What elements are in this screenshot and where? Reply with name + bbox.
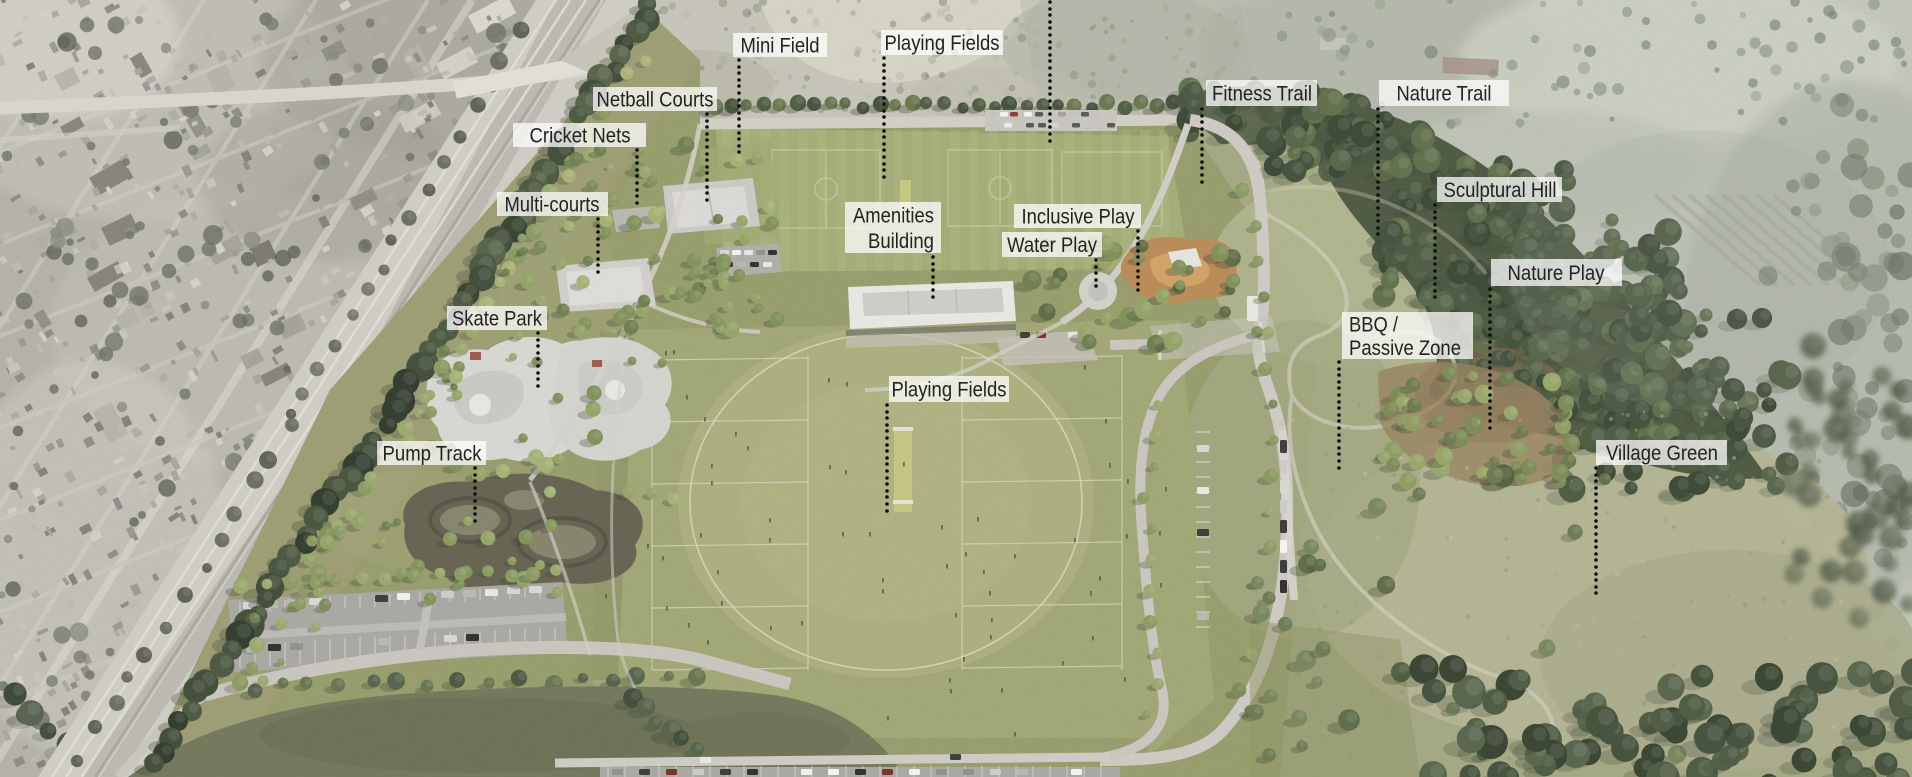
svg-text:BBQ /: BBQ / xyxy=(1349,313,1398,336)
svg-text:Amenities: Amenities xyxy=(853,204,934,227)
svg-text:Nature Trail: Nature Trail xyxy=(1397,83,1492,106)
svg-text:Multi-courts: Multi-courts xyxy=(505,194,600,217)
svg-text:Passive Zone: Passive Zone xyxy=(1349,337,1461,360)
svg-text:Water Play: Water Play xyxy=(1007,234,1097,257)
svg-text:Nature Play: Nature Play xyxy=(1508,262,1605,285)
svg-text:Sculptural Hill: Sculptural Hill xyxy=(1444,179,1557,202)
svg-text:Village Green: Village Green xyxy=(1606,442,1718,465)
svg-text:Mini Field: Mini Field xyxy=(741,35,820,58)
svg-text:Inclusive Play: Inclusive Play xyxy=(1022,206,1135,229)
svg-text:Playing Fields: Playing Fields xyxy=(892,379,1007,402)
svg-text:Fitness Trail: Fitness Trail xyxy=(1212,83,1312,106)
svg-text:Netball Courts: Netball Courts xyxy=(597,89,714,112)
svg-text:Pump Track: Pump Track xyxy=(383,443,482,466)
svg-text:Cricket Nets: Cricket Nets xyxy=(530,125,631,148)
svg-text:Playing Fields: Playing Fields xyxy=(885,32,1000,55)
svg-text:Skate Park: Skate Park xyxy=(452,308,542,331)
svg-text:Building: Building xyxy=(868,230,934,253)
